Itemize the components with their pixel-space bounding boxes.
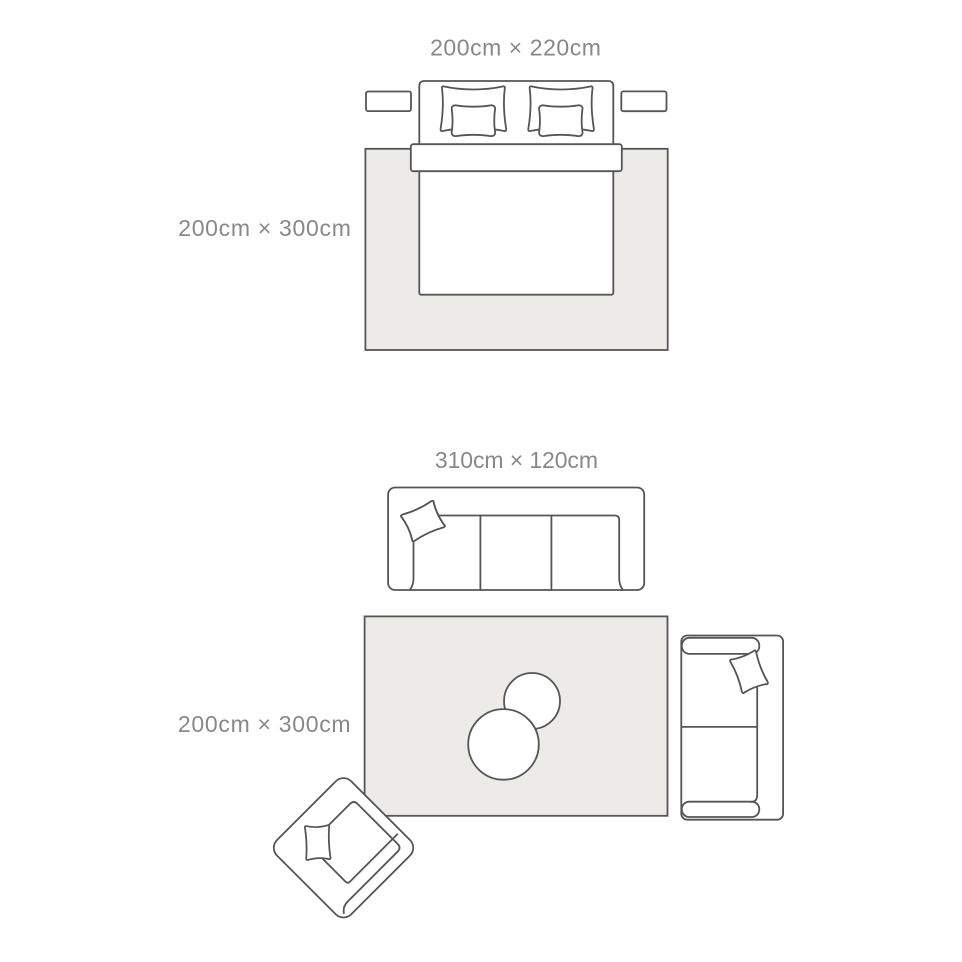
svg-text:200cm × 220cm: 200cm × 220cm bbox=[430, 35, 601, 61]
svg-text:200cm × 300cm: 200cm × 300cm bbox=[178, 711, 351, 737]
svg-text:310cm × 120cm: 310cm × 120cm bbox=[435, 447, 598, 473]
svg-text:200cm × 300cm: 200cm × 300cm bbox=[178, 215, 351, 241]
